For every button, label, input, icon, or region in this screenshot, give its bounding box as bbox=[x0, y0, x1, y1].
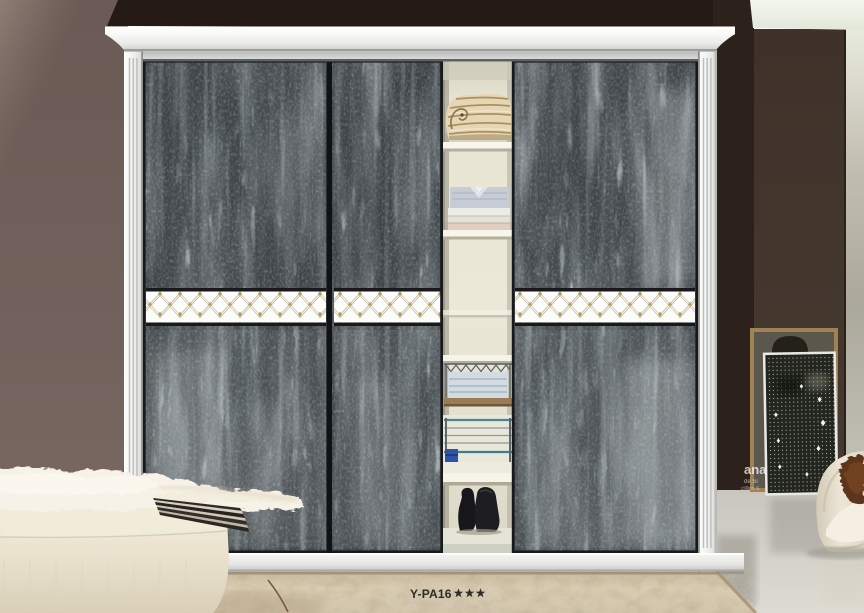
svg-text:ana: ana bbox=[744, 462, 767, 477]
svg-text:Y-PA16: Y-PA16 bbox=[410, 587, 452, 601]
svg-text:clillion S: clillion S bbox=[741, 486, 760, 492]
svg-text:de Si: de Si bbox=[744, 479, 758, 485]
